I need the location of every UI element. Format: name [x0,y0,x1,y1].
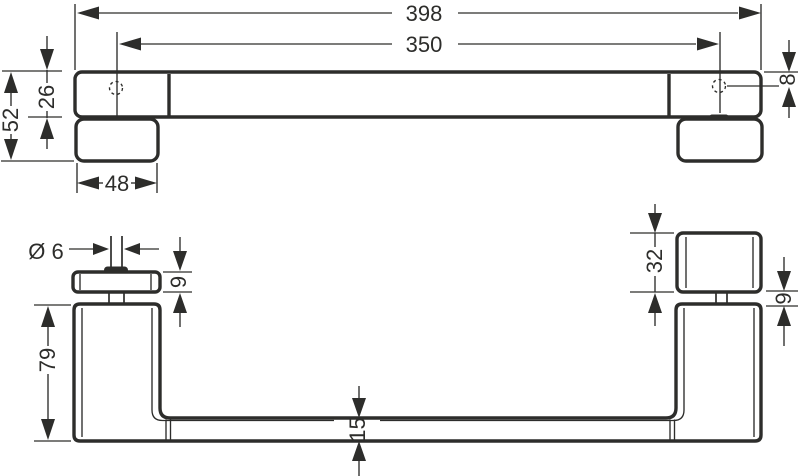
arrowhead-up [777,306,791,326]
arrowhead-up [4,72,18,93]
dim-label-350: 350 [406,32,443,57]
dim-stem-gap: 9 [771,257,796,346]
dim-label-9-left: 9 [166,276,191,288]
arrowhead-down [777,271,791,291]
arrowhead-down [40,49,54,70]
arrowhead-down [352,398,366,418]
arrowhead-up [41,306,55,327]
arrowhead-right [697,38,719,51]
dim-label-9-right: 9 [771,292,796,304]
dim-label-32: 32 [642,249,667,273]
dim-post-height: 79 [35,306,60,440]
arrowhead-down [782,52,796,72]
technical-drawing-canvas: 398 350 52 26 [0,0,800,476]
arrowhead-down [4,139,18,160]
top-view: 398 350 52 26 [0,1,800,196]
arrowhead-left [77,7,99,20]
drawing-page: 398 350 52 26 [0,0,800,476]
arrowhead-right [93,243,109,255]
arrowhead-right [135,177,157,190]
dim-label-48: 48 [105,171,129,196]
arrowhead-up [352,441,366,461]
arrowhead-down [648,213,662,233]
dim-label-26: 26 [34,85,59,109]
arrowhead-down [41,419,55,440]
dim-bar-depth: 26 [34,36,59,149]
arrowhead-left [124,243,140,255]
dim-label-79: 79 [35,348,60,372]
dim-hole-spacing: 350 [119,32,719,57]
dim-clamp-height: 32 [642,204,667,326]
screw-head-bump [104,267,128,274]
arrowhead-left [119,38,141,51]
dim-label-8: 8 [775,73,800,85]
dim-label-52: 52 [0,108,23,132]
dim-label-15: 15 [345,417,370,441]
arrowhead-right [739,7,761,20]
bar-inner-line [152,308,684,421]
left-flange [73,272,160,292]
dim-mount-plate-width: 48 [77,171,157,196]
arrowhead-up [40,118,54,139]
arrowhead-left [77,177,99,190]
dim-edge-to-hole: 8 [775,40,800,118]
arrowhead-up [173,293,187,313]
dim-overall-length: 398 [77,1,761,26]
dim-flange-thickness: 9 [166,237,191,327]
arrowhead-down [173,251,187,271]
right-mount-plate [678,119,762,161]
right-clamp-block [677,233,761,292]
dim-bar-thickness: 15 [345,386,370,476]
side-view: Ø 6 9 79 15 [28,204,798,476]
dim-label-d6: Ø 6 [28,239,63,264]
arrowhead-up [648,293,662,313]
left-mount-plate [76,119,158,161]
dim-total-depth: 52 [0,72,23,160]
dim-screw-diameter: Ø 6 [28,239,159,264]
dim-label-398: 398 [406,1,443,26]
handle-bar-outline [75,72,761,117]
